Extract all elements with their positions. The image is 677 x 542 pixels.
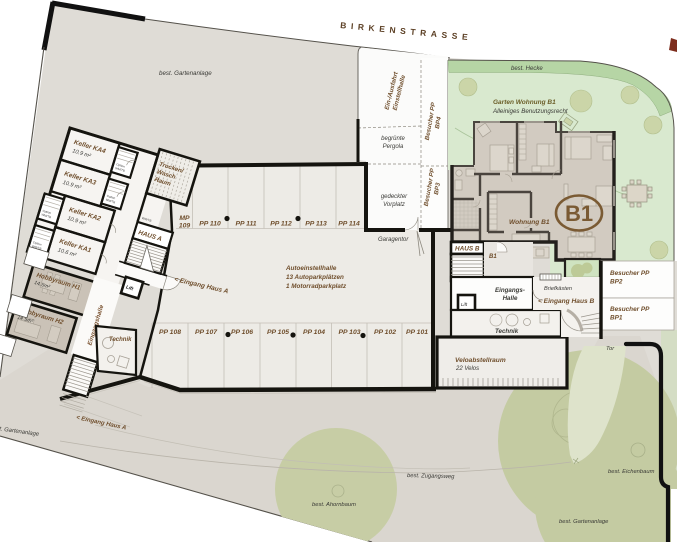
svg-text:Besucher PP: Besucher PP xyxy=(610,306,650,313)
svg-text:PP 113: PP 113 xyxy=(305,221,327,228)
svg-text:Technik: Technik xyxy=(109,337,132,343)
svg-text:PP 112: PP 112 xyxy=(270,221,292,228)
svg-text:PP 103: PP 103 xyxy=(338,329,360,336)
svg-text:Briefkästen: Briefkästen xyxy=(544,286,572,292)
svg-text:best. Hecke: best. Hecke xyxy=(511,66,543,72)
svg-text:PP 110: PP 110 xyxy=(199,221,221,228)
svg-text:PP 102: PP 102 xyxy=(374,329,396,336)
svg-text:BP1: BP1 xyxy=(610,315,623,322)
svg-text:B1: B1 xyxy=(565,201,593,226)
svg-text:PP 108: PP 108 xyxy=(159,329,181,336)
svg-text:PP 101: PP 101 xyxy=(406,329,428,336)
svg-text:13 Autoparkplätzen: 13 Autoparkplätzen xyxy=(286,274,344,281)
svg-text:gedeckter: gedeckter xyxy=(381,194,408,200)
svg-text:Garagentor: Garagentor xyxy=(378,237,409,243)
svg-text:BP2: BP2 xyxy=(610,279,623,286)
svg-text:Garten Wohnung B1: Garten Wohnung B1 xyxy=(493,99,556,106)
svg-text:PP 111: PP 111 xyxy=(235,221,256,228)
svg-text:HAUS B: HAUS B xyxy=(455,246,480,253)
svg-text:Pergola: Pergola xyxy=(383,144,404,150)
svg-text:PP 104: PP 104 xyxy=(303,329,325,336)
svg-text:Alleiniges Benutzungsrecht: Alleiniges Benutzungsrecht xyxy=(492,108,568,115)
svg-text:Tor: Tor xyxy=(606,346,615,352)
svg-text:PP 106: PP 106 xyxy=(231,329,253,336)
svg-text:begrünte: begrünte xyxy=(381,136,405,142)
svg-text:best. Ahornbaum: best. Ahornbaum xyxy=(312,502,356,508)
svg-text:PP 114: PP 114 xyxy=(338,221,360,228)
svg-text:109: 109 xyxy=(179,223,191,230)
svg-text:best. Zugangsweg: best. Zugangsweg xyxy=(407,473,455,480)
svg-text:best. Gartenanlage: best. Gartenanlage xyxy=(559,519,609,525)
svg-text:Technik: Technik xyxy=(495,328,519,335)
svg-text:best. Eichenbaum: best. Eichenbaum xyxy=(608,469,655,475)
svg-text:Veloabstellraum: Veloabstellraum xyxy=(455,357,506,364)
svg-text:PP 105: PP 105 xyxy=(267,329,289,336)
svg-text:22 Velos: 22 Velos xyxy=(455,366,479,372)
svg-text:Halle: Halle xyxy=(503,295,518,302)
svg-text:Besucher PP: Besucher PP xyxy=(610,270,650,277)
svg-text:PP 107: PP 107 xyxy=(195,329,218,336)
svg-text:Lift: Lift xyxy=(461,302,468,307)
svg-text:B1: B1 xyxy=(489,254,497,260)
svg-text:MP: MP xyxy=(179,215,190,222)
svg-text:< Eingang Haus B: < Eingang Haus B xyxy=(538,298,594,305)
svg-text:best. Gartenanlage: best. Gartenanlage xyxy=(159,70,212,77)
svg-text:Eingangs-: Eingangs- xyxy=(495,287,525,294)
svg-text:1 Motorradparkplatz: 1 Motorradparkplatz xyxy=(286,283,347,290)
svg-text:Vorplatz: Vorplatz xyxy=(383,202,405,208)
svg-text:Wohnung B1: Wohnung B1 xyxy=(509,219,550,226)
svg-text:Autoeinstellhalle: Autoeinstellhalle xyxy=(285,265,337,272)
